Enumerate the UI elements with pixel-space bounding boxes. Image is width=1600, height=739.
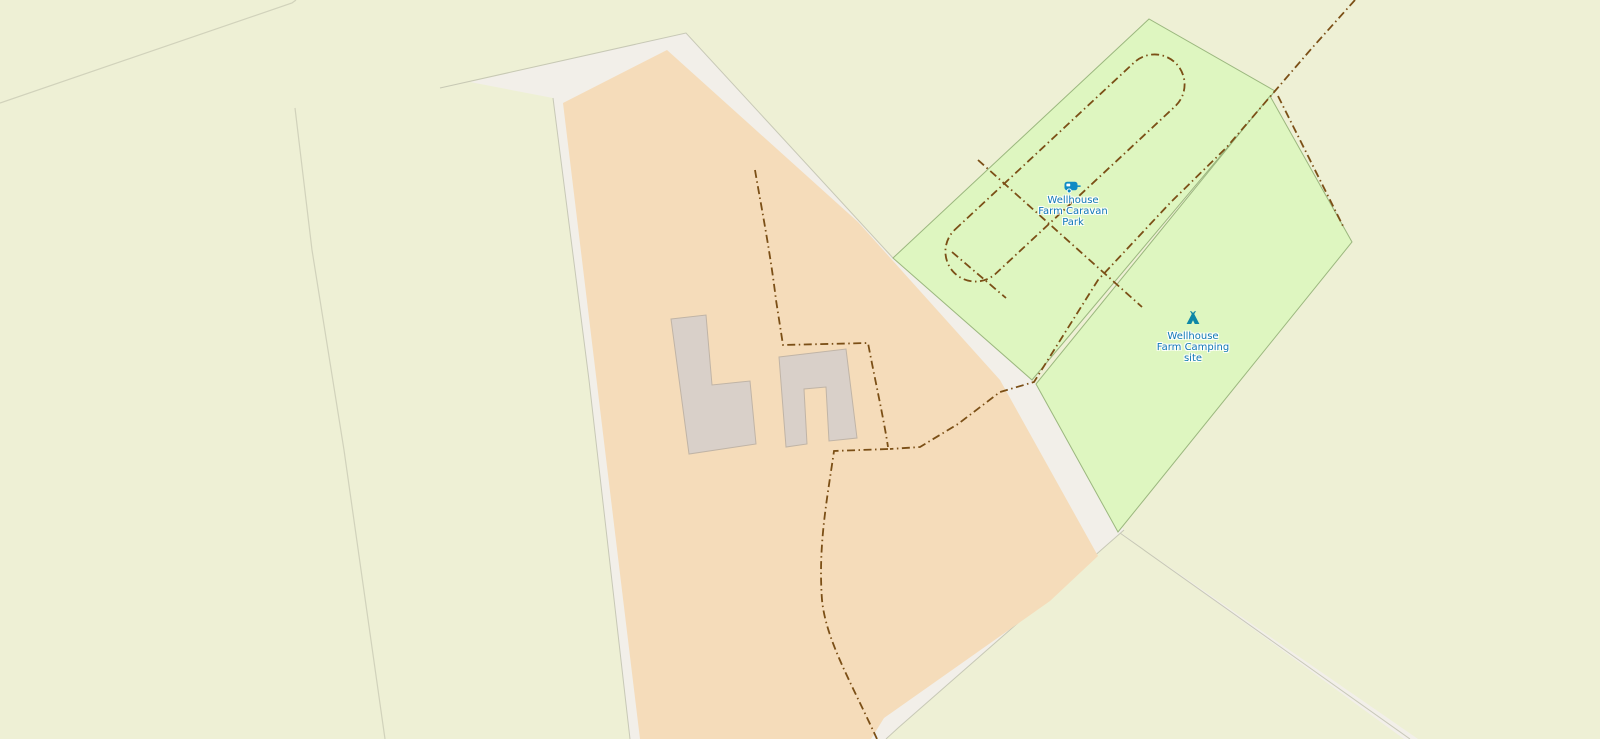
- map-render-layer: [0, 0, 1600, 739]
- map-canvas[interactable]: Wellhouse Farm Caravan Park Wellhouse Fa…: [0, 0, 1600, 739]
